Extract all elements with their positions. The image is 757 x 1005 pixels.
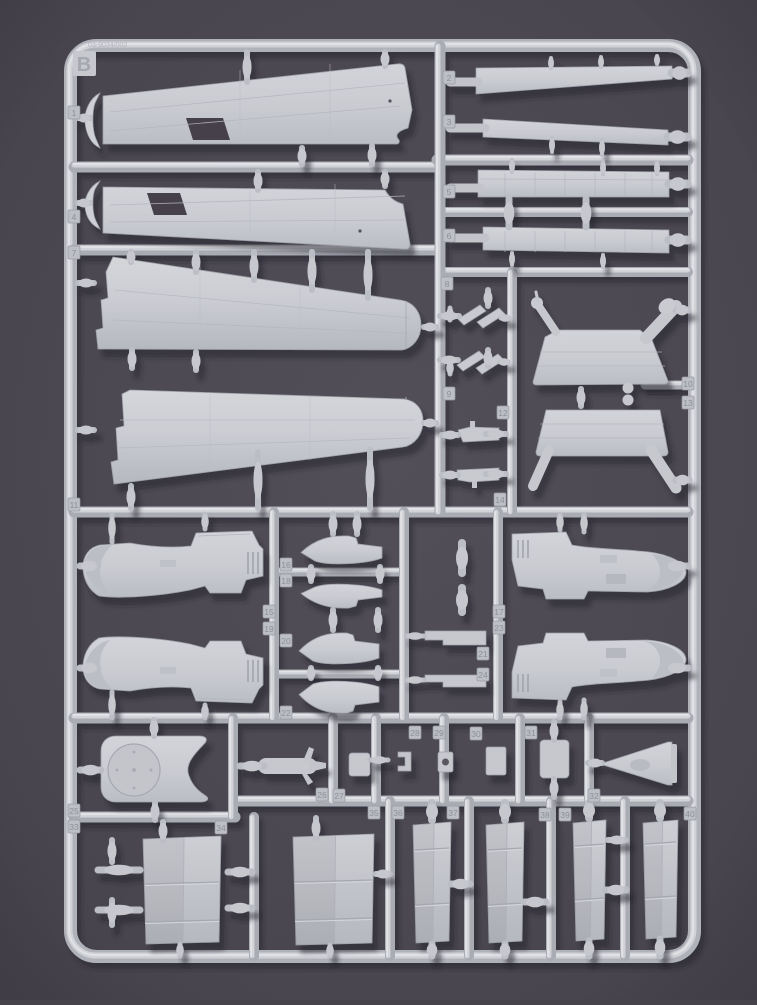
svg-text:22: 22 xyxy=(281,708,291,718)
svg-text:6: 6 xyxy=(447,231,452,241)
svg-text:27: 27 xyxy=(334,791,344,801)
svg-text:32: 32 xyxy=(589,791,599,801)
svg-text:7: 7 xyxy=(72,248,77,258)
svg-text:14: 14 xyxy=(495,495,505,505)
svg-text:19: 19 xyxy=(264,624,274,634)
svg-text:13: 13 xyxy=(683,398,693,408)
svg-text:16: 16 xyxy=(281,560,291,570)
svg-text:24: 24 xyxy=(478,670,488,680)
svg-text:36: 36 xyxy=(393,808,403,818)
svg-text:18: 18 xyxy=(281,576,291,586)
svg-text:03-9034/002: 03-9034/002 xyxy=(88,42,127,49)
svg-text:20: 20 xyxy=(281,636,291,646)
svg-text:35: 35 xyxy=(369,808,379,818)
svg-text:37: 37 xyxy=(448,808,458,818)
svg-text:2: 2 xyxy=(447,73,452,83)
svg-text:10: 10 xyxy=(683,379,693,389)
svg-text:33: 33 xyxy=(69,822,79,832)
svg-text:5: 5 xyxy=(447,187,452,197)
svg-text:23: 23 xyxy=(494,623,504,633)
svg-text:21: 21 xyxy=(478,649,488,659)
svg-text:26: 26 xyxy=(317,790,327,800)
svg-text:9: 9 xyxy=(447,389,452,399)
svg-text:8: 8 xyxy=(445,279,450,289)
svg-text:1: 1 xyxy=(72,108,77,118)
svg-text:39: 39 xyxy=(560,810,570,820)
svg-text:29: 29 xyxy=(434,728,444,738)
svg-text:25: 25 xyxy=(69,806,79,816)
svg-text:30: 30 xyxy=(471,729,481,739)
svg-text:17: 17 xyxy=(494,607,504,617)
svg-text:38: 38 xyxy=(540,810,550,820)
svg-text:11: 11 xyxy=(70,500,79,510)
svg-text:31: 31 xyxy=(526,728,536,738)
svg-text:12: 12 xyxy=(498,408,508,418)
svg-text:28: 28 xyxy=(410,728,420,738)
svg-text:15: 15 xyxy=(264,607,274,617)
svg-text:34: 34 xyxy=(216,823,226,833)
svg-text:3: 3 xyxy=(447,117,452,127)
svg-text:4: 4 xyxy=(72,212,77,222)
svg-text:B: B xyxy=(77,54,91,76)
svg-text:40: 40 xyxy=(685,809,695,819)
